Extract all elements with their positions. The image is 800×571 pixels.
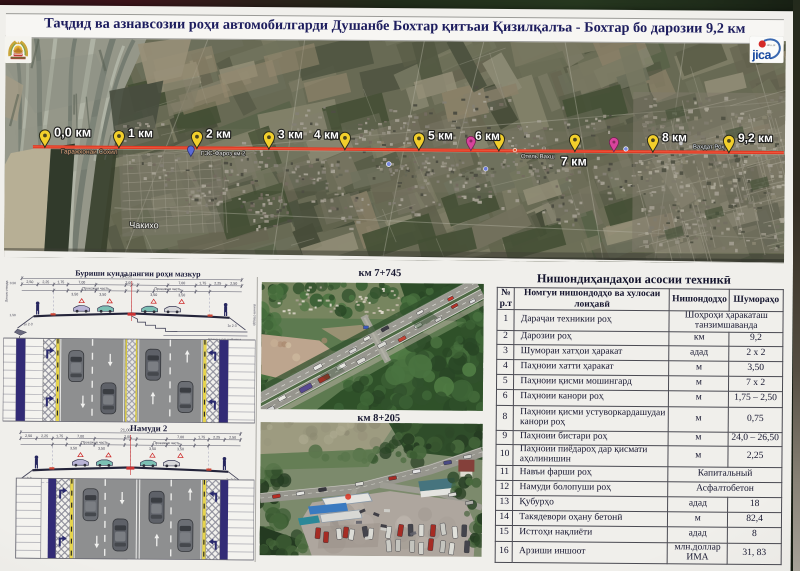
svg-text:2,50: 2,50 [229, 436, 236, 440]
svg-text:3,50: 3,50 [98, 447, 105, 451]
svg-text:3,50: 3,50 [71, 292, 78, 296]
svg-text:Проезжая часть: Проезжая часть [82, 286, 109, 290]
svg-text:Линия отвода: Линия отвода [5, 280, 9, 302]
svg-text:2,25: 2,25 [42, 280, 49, 284]
svg-text:21,00: 21,00 [120, 427, 131, 432]
svg-text:Линия отвода: Линия отвода [252, 304, 255, 326]
svg-text:2,25: 2,25 [41, 434, 48, 438]
svg-text:ЈІСА ЈР: ЈІСА ЈР [767, 44, 776, 47]
svg-text:24,50: 24,50 [122, 273, 133, 278]
svg-text:Отель Вахш: Отель Вахш [521, 154, 555, 160]
svg-text:Гаражхонаи Сохил: Гаражхонаи Сохил [61, 148, 118, 155]
svg-text:Проезжая часть: Проезжая часть [153, 441, 180, 445]
svg-text:2,25: 2,25 [213, 436, 220, 440]
svg-text:2,25: 2,25 [214, 282, 221, 286]
svg-text:Проезжая часть: Проезжая часть [154, 287, 181, 291]
svg-text:1к 2-3: 1к 2-3 [23, 322, 32, 326]
svg-text:7,00: 7,00 [78, 280, 85, 284]
svg-text:0,0 км: 0,0 км [54, 124, 91, 139]
svg-text:3,50: 3,50 [149, 447, 156, 451]
svg-text:Намуди 2: Намуди 2 [130, 423, 168, 433]
svg-text:7,00: 7,00 [177, 435, 184, 439]
svg-text:Чакихо: Чакихо [129, 220, 158, 230]
svg-text:1,75: 1,75 [57, 280, 64, 284]
svg-text:7,00: 7,00 [178, 281, 185, 285]
svg-text:1к 2-3: 1к 2-3 [227, 324, 236, 328]
svg-text:Буриши кундалангии роҳи мазкур: Буриши кундалангии роҳи мазкур [75, 269, 201, 279]
svg-text:4 км: 4 км [314, 127, 339, 141]
svg-text:Проезжая часть: Проезжая часть [81, 440, 108, 444]
svg-text:3,50: 3,50 [178, 293, 185, 297]
svg-text:3,50: 3,50 [177, 447, 184, 451]
svg-text:1,50: 1,50 [10, 313, 16, 317]
svg-text:1,75: 1,75 [198, 435, 205, 439]
svg-text:7,00: 7,00 [77, 434, 84, 438]
svg-text:6 км: 6 км [475, 129, 500, 143]
svg-text:3 км: 3 км [278, 127, 303, 141]
svg-text:2 км: 2 км [206, 127, 231, 141]
svg-text:2,50: 2,50 [26, 280, 33, 284]
svg-text:9,2 км: 9,2 км [738, 131, 773, 145]
svg-text:1,75: 1,75 [199, 281, 206, 285]
svg-text:2,50: 2,50 [25, 434, 32, 438]
svg-text:3,50: 3,50 [99, 293, 106, 297]
svg-text:1 км: 1 км [128, 126, 153, 140]
svg-text:ГЭС-Фароз км 2: ГЭС-Фароз км 2 [201, 151, 246, 157]
svg-text:2,50: 2,50 [230, 282, 237, 286]
svg-text:3,50: 3,50 [150, 293, 157, 297]
svg-text:2,00: 2,00 [125, 281, 132, 285]
svg-text:0,50: 0,50 [10, 281, 16, 285]
svg-text:5 км: 5 км [428, 128, 453, 142]
svg-text:Вахдат Роҳ: Вахдат Роҳ [693, 144, 725, 150]
svg-text:1,75: 1,75 [56, 434, 63, 438]
svg-text:2,00: 2,00 [124, 435, 131, 439]
svg-text:8 км: 8 км [662, 130, 687, 144]
svg-text:3,50: 3,50 [70, 446, 77, 450]
svg-text:7 км: 7 км [561, 154, 587, 168]
svg-text:jica: jica [751, 48, 773, 62]
